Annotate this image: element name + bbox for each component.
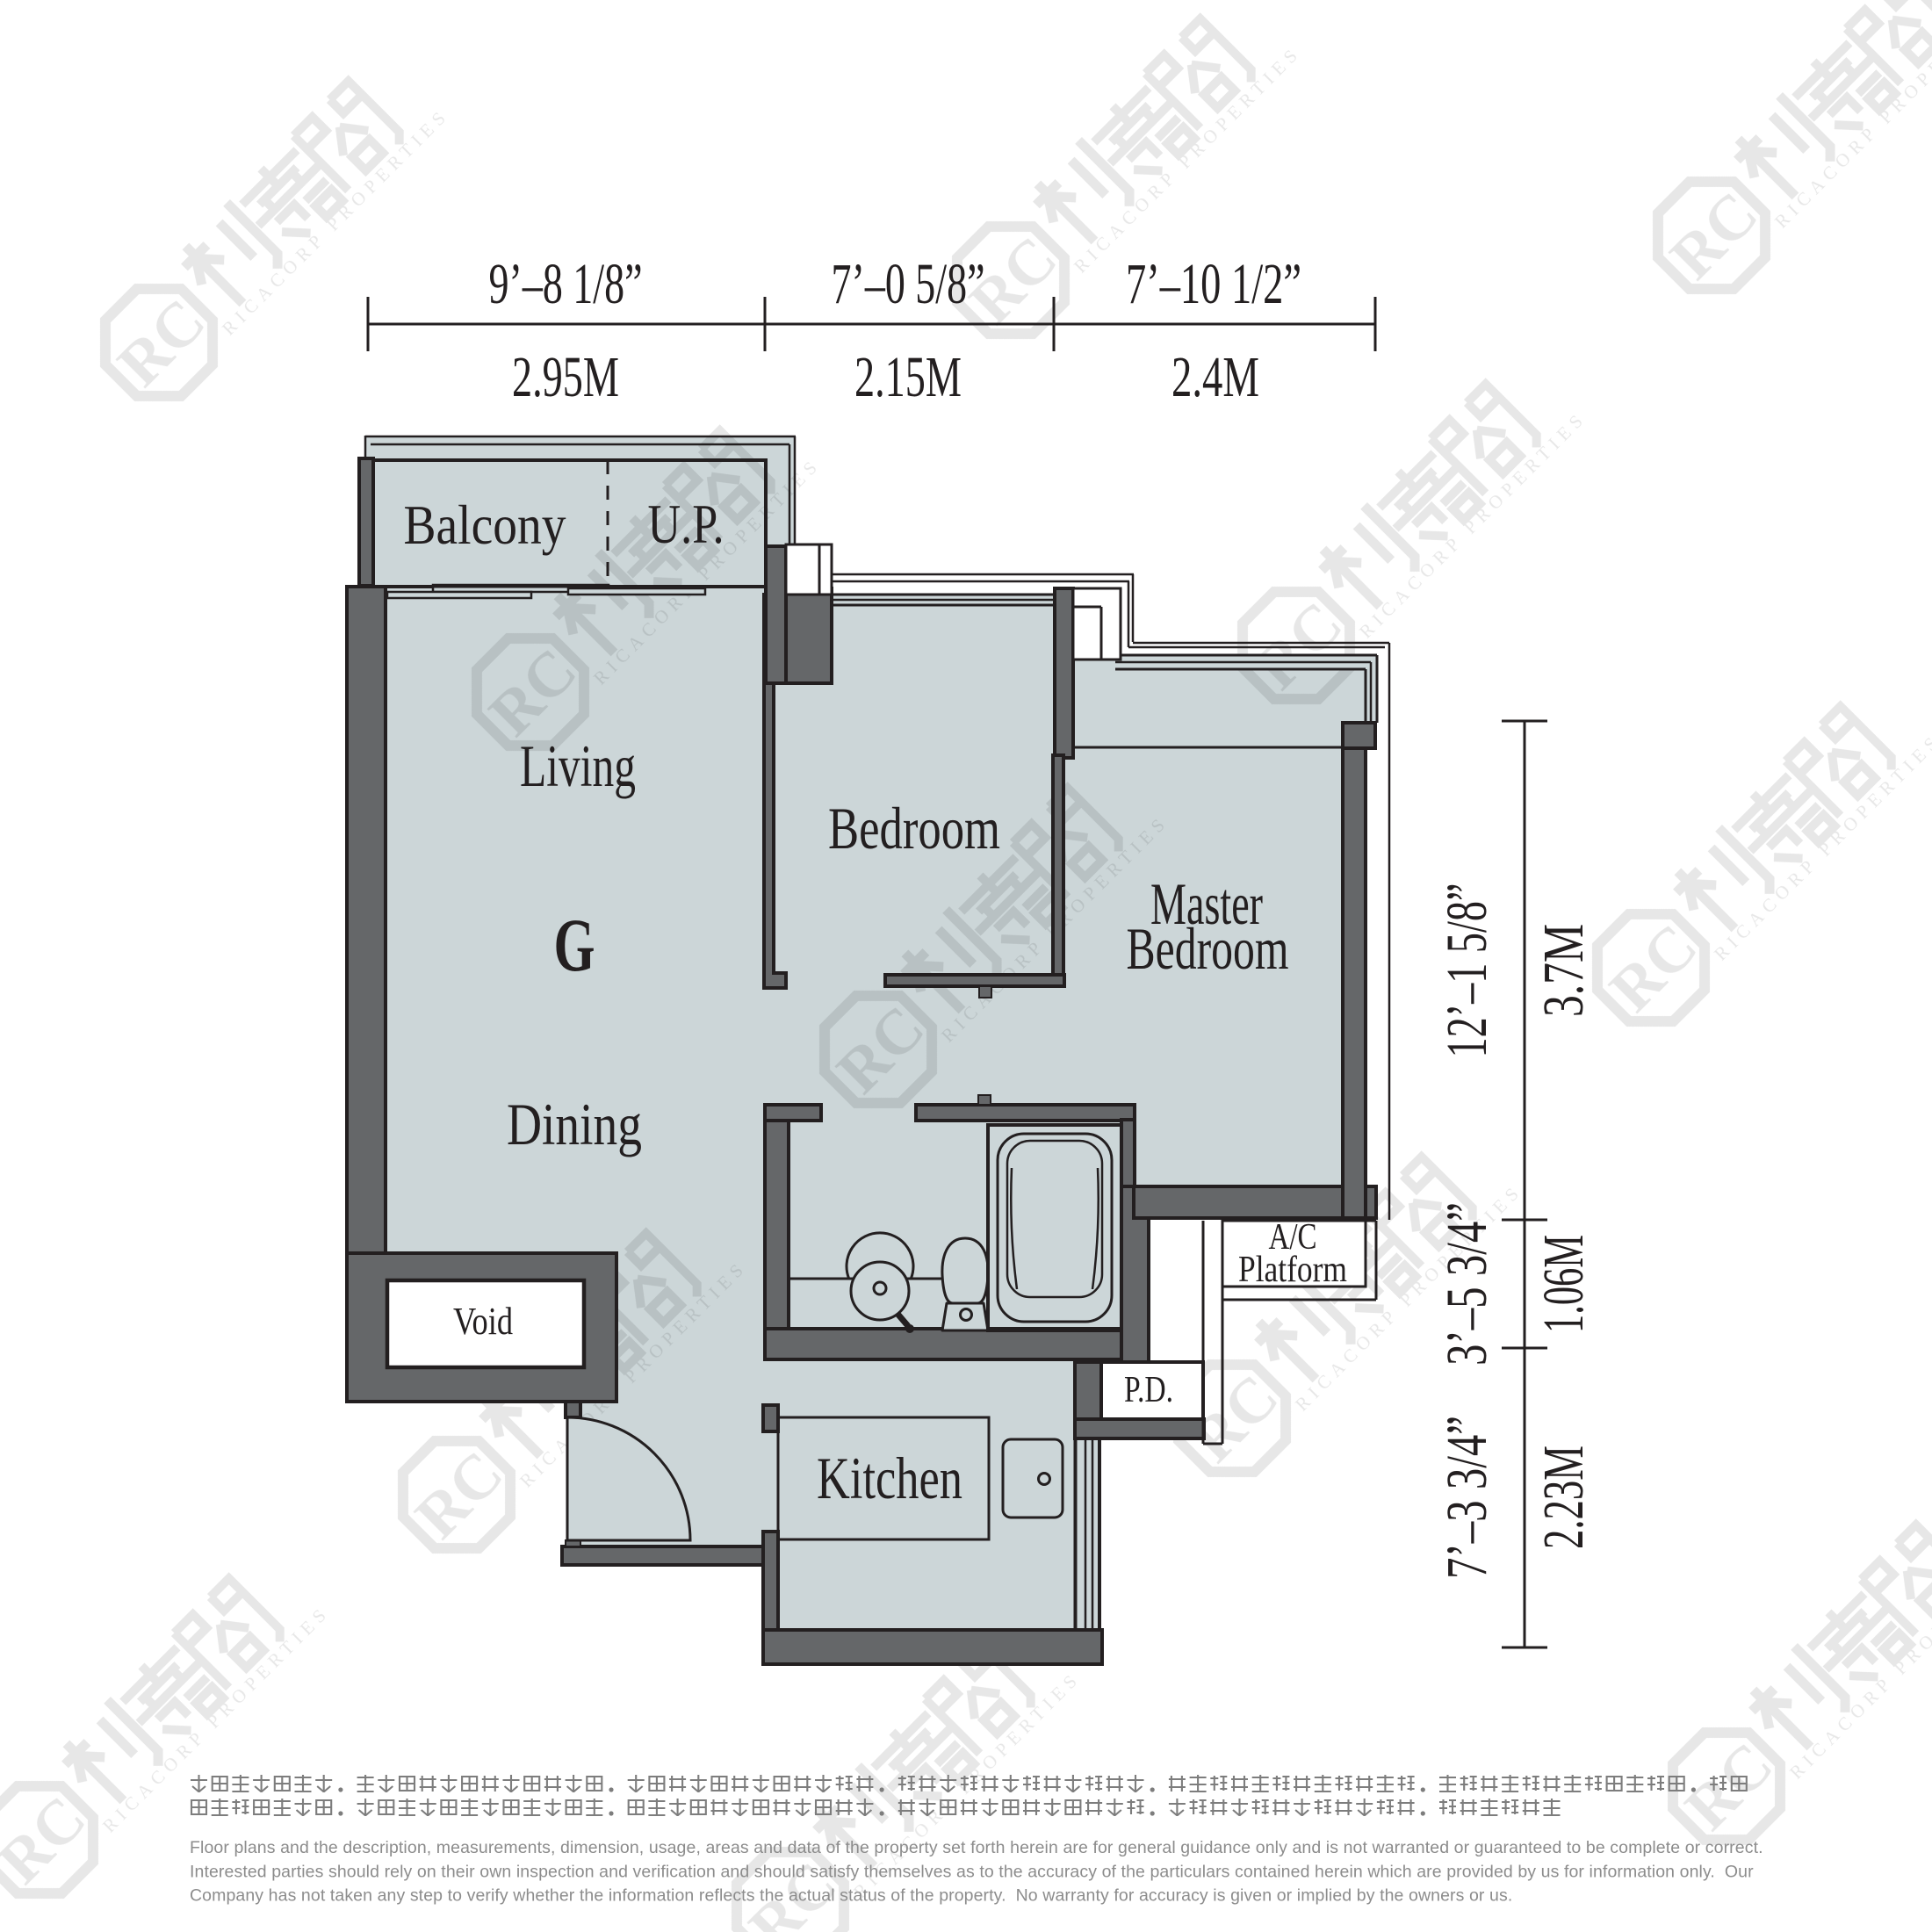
svg-text:7’–3 3/4”: 7’–3 3/4” xyxy=(1435,1416,1499,1579)
svg-text:Living: Living xyxy=(520,732,636,799)
svg-text:3.7M: 3.7M xyxy=(1532,924,1596,1017)
svg-text:RICACORP PROPERTIES: RICACORP PROPERTIES xyxy=(218,104,453,339)
svg-text:Floor plans and the descriptio: Floor plans and the description, measure… xyxy=(190,1838,1763,1857)
svg-text:7’–0 5/8”: 7’–0 5/8” xyxy=(832,252,985,316)
svg-text:7’–10 1/2”: 7’–10 1/2” xyxy=(1126,252,1301,316)
svg-text:G: G xyxy=(554,903,595,987)
svg-text:9’–8 1/8”: 9’–8 1/8” xyxy=(489,252,643,316)
svg-text:Company has not taken any step: Company has not taken any step to verify… xyxy=(190,1886,1512,1906)
svg-text:Dining: Dining xyxy=(507,1091,642,1157)
svg-text:2.23M: 2.23M xyxy=(1532,1445,1596,1549)
svg-text:1.06M: 1.06M xyxy=(1532,1235,1596,1333)
svg-text:P.D.: P.D. xyxy=(1124,1370,1173,1410)
svg-text:Platform: Platform xyxy=(1238,1250,1347,1290)
svg-text:Interested parties should rely: Interested parties should rely on their … xyxy=(190,1862,1754,1881)
svg-text:2.95M: 2.95M xyxy=(512,345,619,409)
svg-text:Void: Void xyxy=(453,1300,513,1343)
svg-text:12’–1 5/8”: 12’–1 5/8” xyxy=(1435,883,1499,1058)
svg-text:U.P.: U.P. xyxy=(648,493,724,555)
svg-text:Kitchen: Kitchen xyxy=(817,1445,962,1511)
svg-text:2.15M: 2.15M xyxy=(854,345,962,409)
svg-text:RICACORP PROPERTIES: RICACORP PROPERTIES xyxy=(1070,41,1305,277)
svg-text:2.4M: 2.4M xyxy=(1171,345,1259,409)
svg-text:RICACORP PROPERTIES: RICACORP PROPERTIES xyxy=(1355,407,1590,642)
svg-text:Balcony: Balcony xyxy=(404,494,566,556)
svg-text:3’–5 3/4”: 3’–5 3/4” xyxy=(1435,1202,1499,1366)
svg-text:Bedroom: Bedroom xyxy=(1127,915,1289,982)
svg-text:RC: RC xyxy=(0,1783,99,1897)
svg-text:Bedroom: Bedroom xyxy=(828,795,1000,861)
